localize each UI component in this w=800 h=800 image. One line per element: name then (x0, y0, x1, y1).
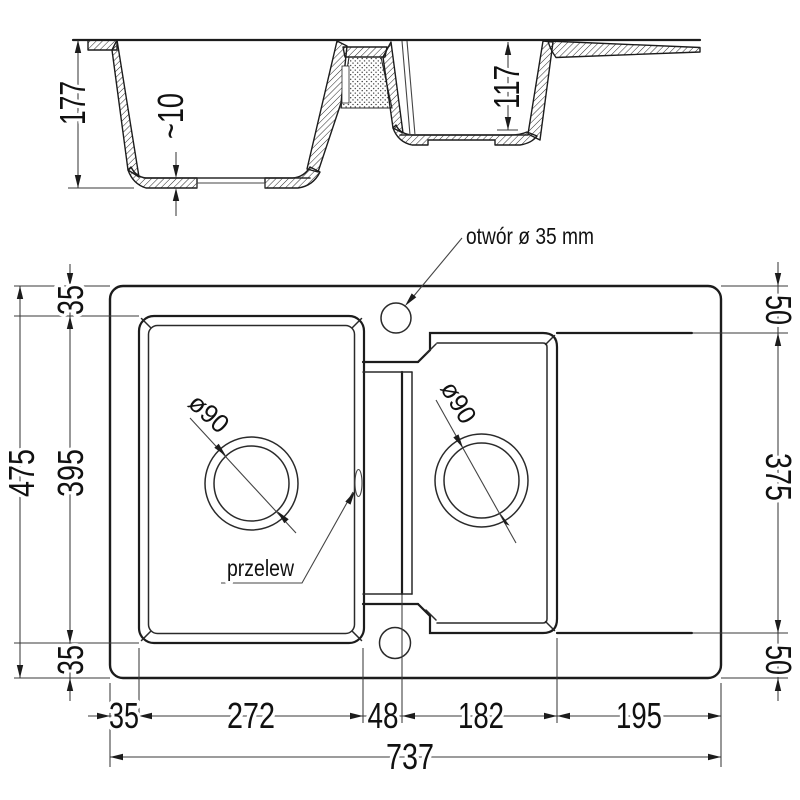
dim-right-bottom-margin-text: 50 (758, 645, 799, 675)
main-bowl-corner-chamfers (142, 319, 362, 641)
dims-left: 475 35 395 35 (1, 264, 139, 701)
main-bowl-outer-rim (139, 316, 364, 643)
main-drain-recess (197, 183, 265, 188)
tap-hole-top (381, 303, 411, 333)
divider-inner-edges (363, 372, 412, 594)
divider-overflow-channel (342, 66, 349, 103)
plan-view: ø90 ø90 przelew otwór ø 35 mm (1, 223, 799, 777)
main-bowl-left-wall (112, 40, 139, 177)
overflow-label: przelew (227, 555, 294, 581)
overflow-callout: przelew (221, 470, 362, 584)
small-bowl-corner-chamfers (426, 336, 555, 631)
sink-outline (110, 286, 721, 678)
dim-depth-small: 117 (486, 42, 527, 130)
dim-right-height-text: 375 (758, 453, 799, 501)
main-bowl (139, 316, 364, 643)
dim-overall-width-text: 737 (386, 736, 434, 777)
tap-hole-label: otwór ø 35 mm (466, 223, 594, 249)
small-bowl-corner-edge-1 (402, 41, 410, 135)
technical-drawing: 177 ~10 117 (0, 0, 800, 800)
dim-main-drain: ø90 (183, 387, 296, 533)
small-bowl-right-wall (528, 41, 553, 140)
small-bowl-corner-edge-2 (407, 41, 415, 135)
dim-main-width-text: 272 (227, 695, 275, 736)
divider-cap (343, 47, 387, 57)
dim-bottom-margin-text: 35 (50, 645, 91, 675)
dim-right-top-margin-text: 50 (758, 295, 799, 325)
dim-depth-small-text: 117 (486, 65, 527, 109)
dims-bottom: 35 272 48 182 195 737 (88, 594, 721, 777)
dim-depth-main-text: 177 (52, 81, 93, 125)
dim-left-margin-text: 35 (109, 695, 139, 736)
dim-small-drain-text: ø90 (435, 376, 483, 429)
dim-overall-height-text: 475 (1, 449, 42, 497)
divider-outer-edges (363, 362, 418, 604)
dim-bottom-thickness: ~10 (150, 93, 191, 216)
dim-divider-width-text: 48 (368, 695, 399, 736)
dim-bottom-thickness-text: ~10 (150, 93, 191, 139)
dim-bowl-height-text: 395 (50, 449, 91, 497)
dim-main-drain-text: ø90 (183, 387, 236, 439)
dims-right: 50 375 50 (692, 262, 799, 701)
dim-small-width-text: 182 (458, 695, 504, 736)
dim-top-margin-text: 35 (50, 285, 91, 315)
main-drain-hole-circle (214, 446, 289, 521)
tap-hole-callout: otwór ø 35 mm (405, 223, 594, 306)
section-view: 177 ~10 117 (52, 40, 700, 216)
small-bowl-outer-rim (418, 333, 557, 633)
dim-drainer-width-text: 195 (616, 695, 662, 736)
drainboard-slab (548, 41, 700, 58)
overflow-slot (355, 470, 362, 497)
sink-drawing-svg: 177 ~10 117 (0, 0, 800, 800)
drainboard-edges (557, 333, 692, 633)
main-bowl-inner-rim (149, 326, 355, 634)
tap-hole-bottom (380, 628, 411, 659)
